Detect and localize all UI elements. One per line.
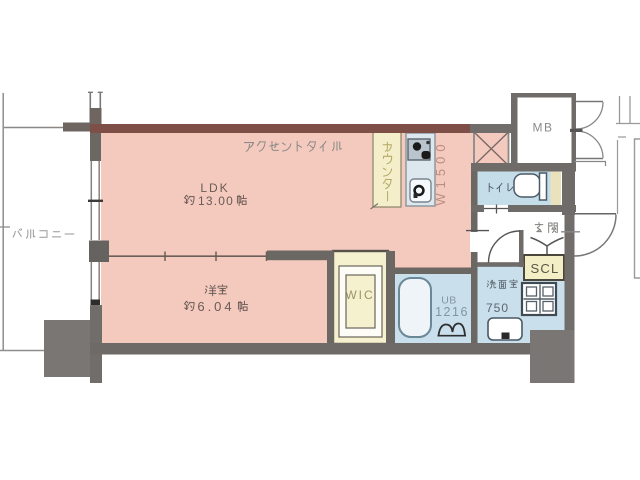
svg-text:13.00: 13.00 — [198, 194, 234, 208]
svg-text:SCL: SCL — [531, 261, 560, 276]
svg-text:6.04: 6.04 — [197, 299, 234, 314]
svg-text:WIC: WIC — [345, 288, 374, 302]
svg-text:750: 750 — [486, 301, 509, 315]
svg-text:MB: MB — [533, 121, 554, 135]
svg-text:W1500: W1500 — [433, 139, 448, 205]
svg-text:1216: 1216 — [435, 305, 469, 319]
